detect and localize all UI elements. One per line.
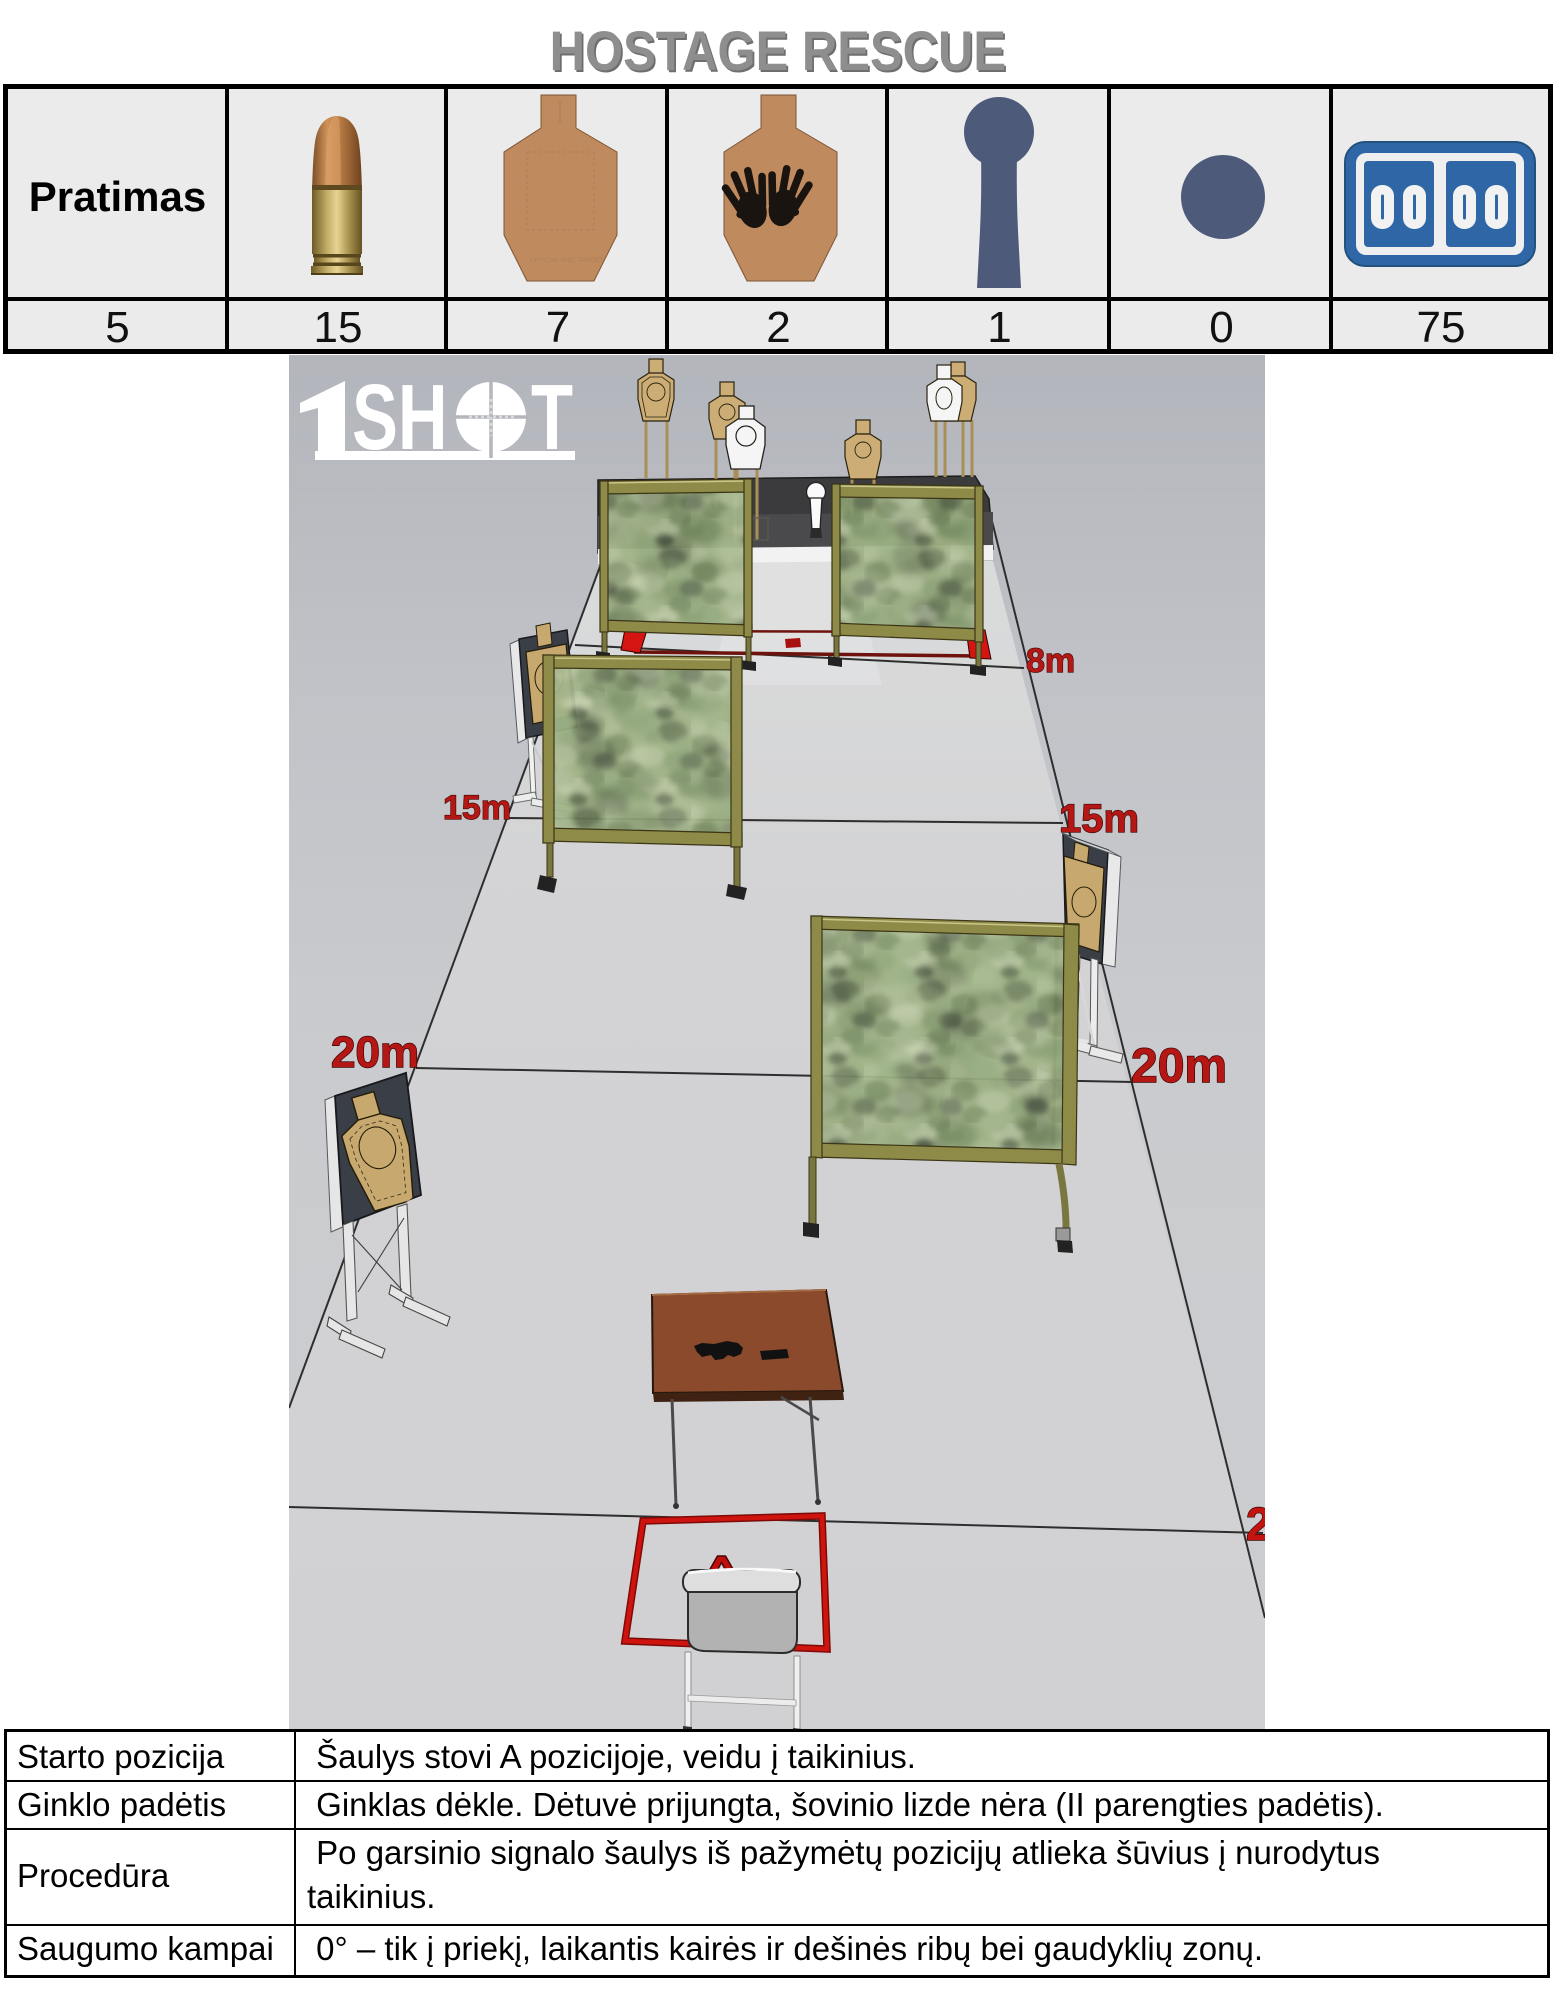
svg-text:SH: SH (352, 366, 448, 469)
svg-text:25m: 25m (1246, 1498, 1265, 1550)
svg-text:20m: 20m (331, 1028, 419, 1077)
svg-text:T: T (531, 366, 573, 469)
svg-text:15m: 15m (1059, 797, 1139, 841)
svg-text:15m: 15m (443, 789, 511, 827)
svg-text:OFFICIAL IPSC TARGET: OFFICIAL IPSC TARGET (530, 257, 604, 264)
svg-text:20m: 20m (1131, 1040, 1227, 1093)
svg-text:8m: 8m (1026, 642, 1075, 680)
